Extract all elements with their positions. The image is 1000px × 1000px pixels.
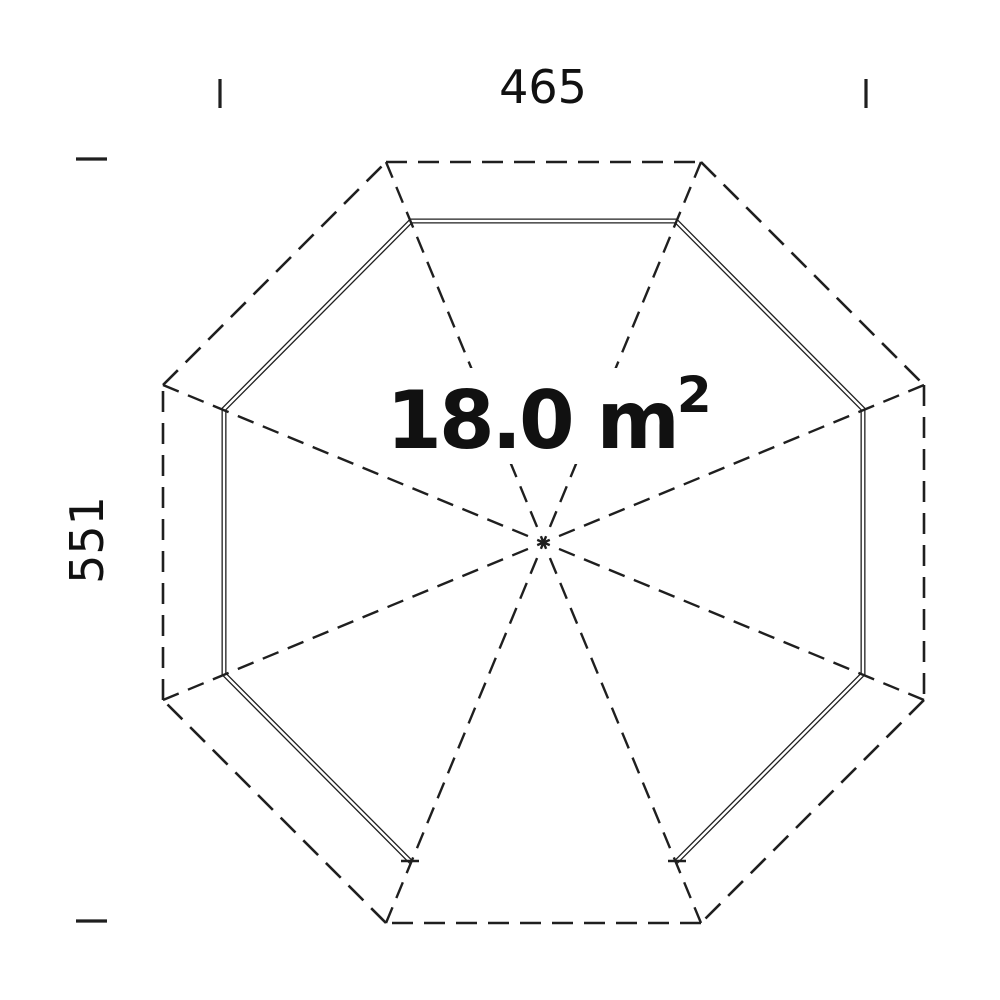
roof-edge [163,162,386,385]
floor-plan-drawing: 465 551 18.0 m2 [0,0,1000,1000]
roof-edge [701,700,924,923]
roof-ridge-line [163,543,544,701]
dimension-ticks-group [76,79,866,921]
roof-ridge-line [544,543,702,924]
ridge-lines-group [163,162,924,923]
floor-plan-page: 465 551 18.0 m2 [0,0,1000,1000]
roof-ridge-line [386,543,544,924]
roof-edge [701,162,924,385]
roof-edge [163,700,386,923]
width-dimension-label: 465 [499,60,587,114]
area-label: 18.0 m2 [386,366,711,467]
area-superscript: 2 [677,366,712,424]
roof-ridge-line [544,543,925,701]
area-value: 18.0 m [386,374,677,467]
height-dimension-label: 551 [60,496,114,584]
